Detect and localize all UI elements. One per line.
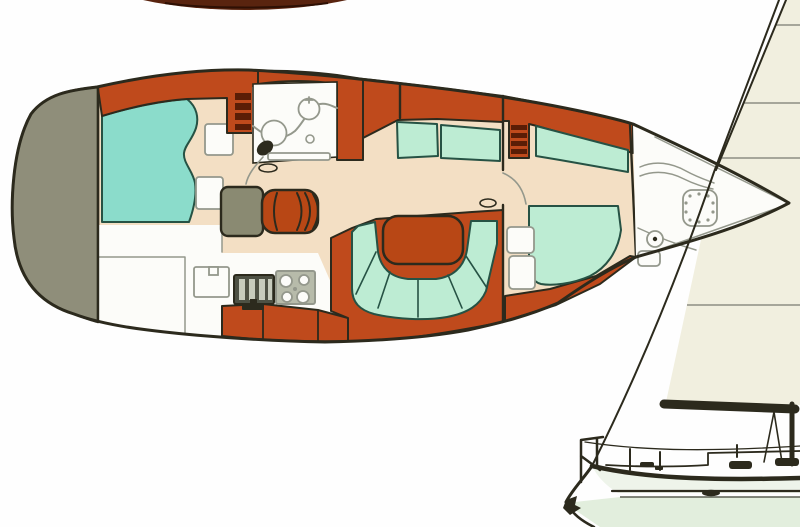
oven-bar bbox=[239, 279, 245, 300]
step-rung bbox=[235, 93, 251, 100]
oven-bar bbox=[259, 279, 265, 300]
bow-hatch bbox=[683, 190, 717, 226]
forward-step bbox=[509, 256, 535, 289]
louver-slat bbox=[511, 133, 527, 138]
head-shelf bbox=[268, 153, 330, 160]
burner-icon bbox=[299, 275, 309, 285]
porthole-icon bbox=[702, 490, 720, 496]
scanned-brochure-page bbox=[0, 0, 800, 527]
step-rung bbox=[235, 103, 251, 110]
oven-gimbal-post bbox=[250, 299, 257, 305]
louver-slat bbox=[511, 149, 527, 154]
door-handle-icon bbox=[259, 164, 277, 172]
windlass-center bbox=[653, 237, 657, 241]
deck-hatch bbox=[775, 458, 799, 466]
interior-floorplan bbox=[12, 70, 789, 342]
burner-icon bbox=[280, 275, 292, 287]
oven-bar bbox=[249, 279, 255, 300]
oven-bar bbox=[268, 279, 272, 300]
side-view-boat bbox=[563, 404, 800, 527]
step-rung bbox=[235, 113, 251, 120]
locker-hatch bbox=[196, 177, 223, 209]
stern-swim-platform bbox=[12, 87, 98, 322]
galley-sink-notch bbox=[209, 267, 218, 275]
step-rung bbox=[235, 124, 251, 130]
cropped-hull-top bbox=[143, 0, 347, 10]
deck-line bbox=[606, 451, 800, 467]
deck-cleat bbox=[655, 466, 663, 470]
boom bbox=[664, 404, 795, 409]
mainsheet bbox=[764, 412, 782, 462]
aft-cabin-berth bbox=[102, 99, 197, 222]
port-settee-cushion bbox=[441, 125, 500, 161]
salon-table bbox=[383, 216, 463, 264]
deck-cleat bbox=[640, 462, 654, 467]
underwater-hull bbox=[566, 497, 800, 527]
nav-desk bbox=[221, 187, 263, 236]
deck-hatch bbox=[729, 461, 752, 469]
burner-knob bbox=[293, 287, 297, 291]
stem-profile bbox=[566, 466, 592, 502]
port-settee-cushion bbox=[397, 122, 438, 158]
nav-chair bbox=[262, 190, 318, 233]
burner-icon bbox=[297, 291, 309, 303]
forward-step bbox=[507, 227, 534, 253]
louver-slat bbox=[511, 141, 527, 146]
boat-diagram bbox=[0, 0, 800, 527]
burner-icon bbox=[282, 292, 292, 302]
louver-slat bbox=[511, 125, 527, 130]
door-handle-icon bbox=[480, 199, 496, 207]
